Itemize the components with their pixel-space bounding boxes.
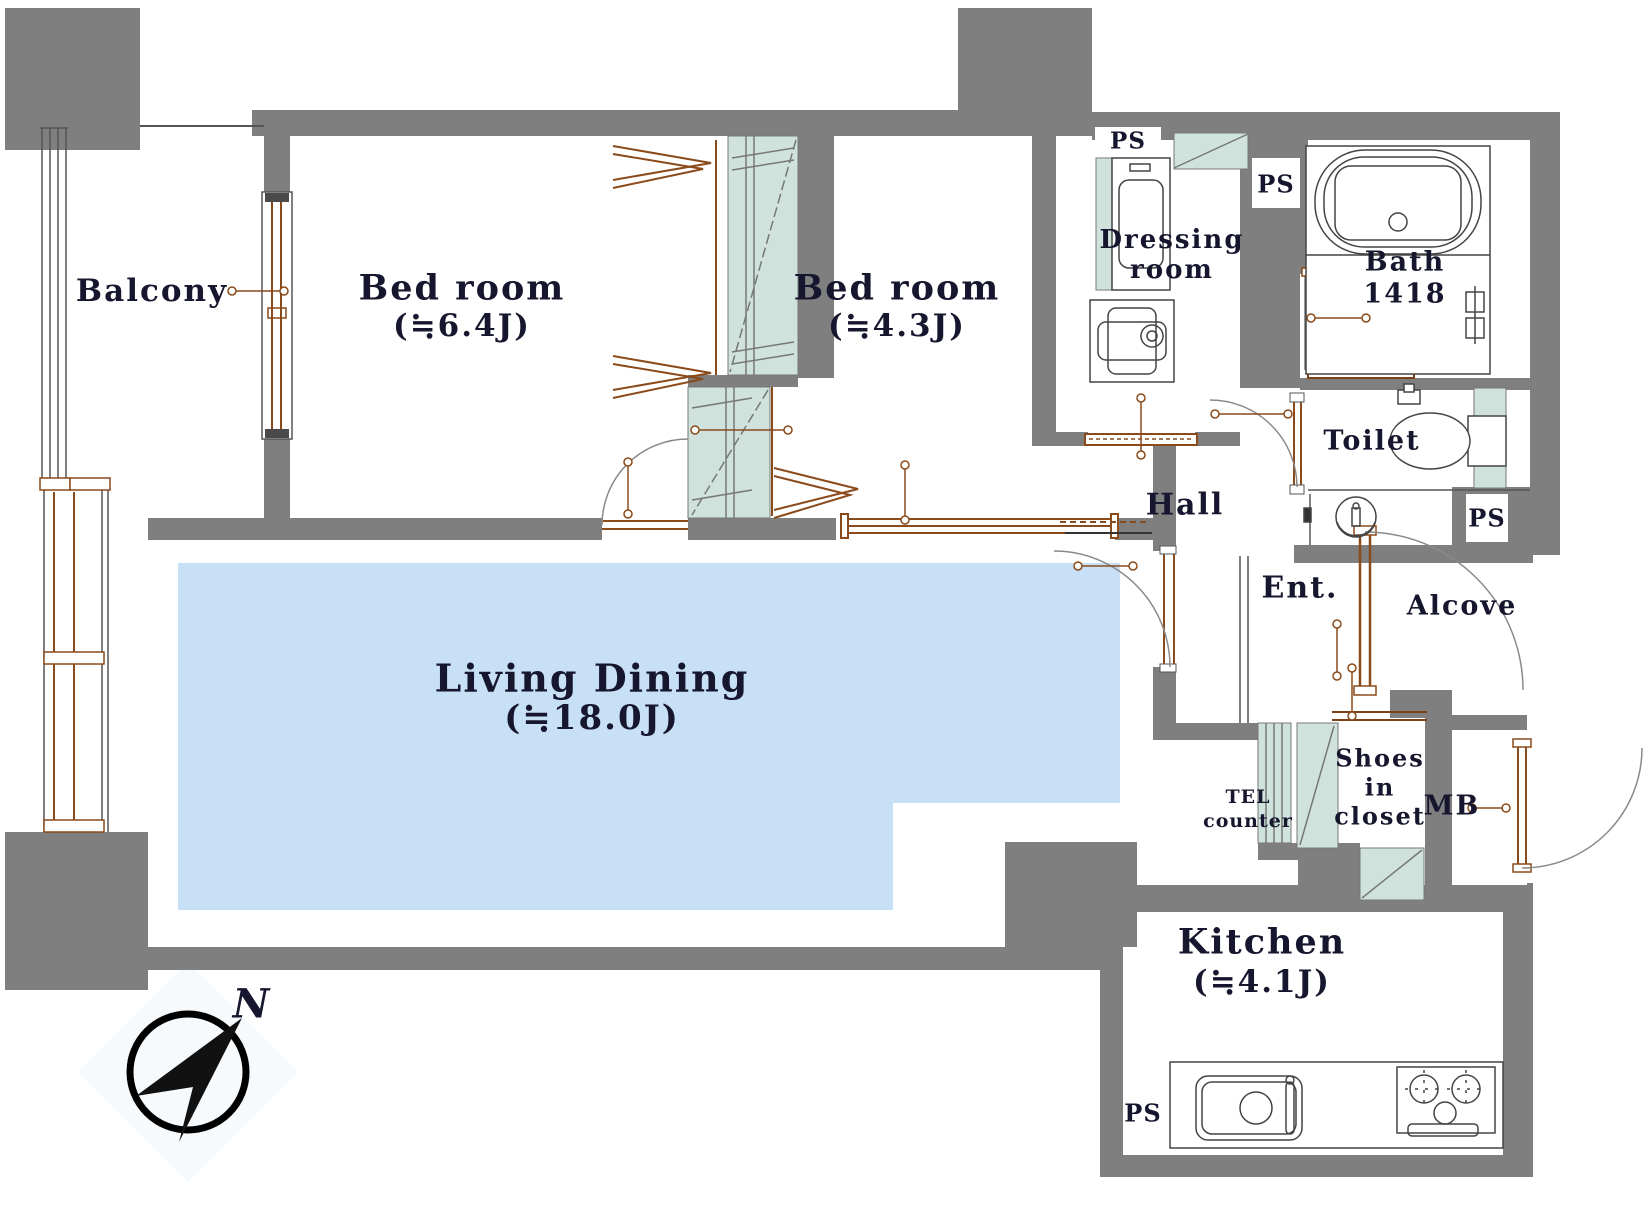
bedroom-small-size: (≒4.3J) xyxy=(828,308,966,344)
wall xyxy=(264,436,290,520)
ps-label: PS xyxy=(1124,1099,1161,1128)
wall xyxy=(1100,1155,1533,1177)
tel-counter-label-2: counter xyxy=(1203,810,1293,832)
wall xyxy=(1503,883,1533,1177)
washing-machine-pan xyxy=(1090,300,1174,382)
wall xyxy=(1153,667,1176,723)
wall xyxy=(1153,723,1258,740)
bath-label: Bath xyxy=(1365,247,1445,278)
dressing-room-label-2: room xyxy=(1130,255,1214,285)
dressing-side-fill xyxy=(1096,158,1112,290)
bedroom1-door xyxy=(602,439,688,529)
living-window xyxy=(40,478,110,832)
bedroom-window xyxy=(262,192,292,439)
wall xyxy=(1032,136,1056,446)
wall xyxy=(1056,432,1088,446)
tel-counter-label-1: TEL xyxy=(1226,786,1271,808)
alcove-label: Alcove xyxy=(1407,591,1518,622)
wall xyxy=(1390,690,1452,718)
wall xyxy=(1092,112,1560,140)
hall-label: Hall xyxy=(1146,488,1225,523)
wall xyxy=(148,518,602,540)
wall xyxy=(1123,885,1532,912)
wall xyxy=(1005,842,1137,947)
kitchen-size: (≒4.1J) xyxy=(1193,964,1331,1000)
balcony-label: Balcony xyxy=(76,273,228,309)
wall xyxy=(1100,947,1123,1177)
shoes-closet-label-1: Shoes xyxy=(1335,744,1425,773)
bath-size-label: 1418 xyxy=(1363,279,1446,310)
wall xyxy=(1195,432,1240,446)
compass-north-label: N xyxy=(233,981,272,1028)
shoes-closet-label-2: in xyxy=(1365,773,1396,802)
bedroom2-sliding-door xyxy=(841,514,1152,538)
ps-label: PS xyxy=(1110,128,1146,155)
meter-box-label: MB xyxy=(1424,791,1481,822)
wall xyxy=(5,8,140,150)
balcony-rail xyxy=(40,128,68,488)
bedroom-large-size: (≒6.4J) xyxy=(393,308,531,344)
living-dining-size: (≒18.0J) xyxy=(504,698,680,738)
wall xyxy=(688,375,798,387)
floor-plan: Balcony Bed room (≒6.4J) Bed room (≒4.3J… xyxy=(0,0,1647,1212)
wall xyxy=(148,947,1123,970)
wall xyxy=(688,518,836,540)
meter-box-door xyxy=(1513,739,1642,872)
dressing-room-label-1: Dressing xyxy=(1099,225,1244,255)
bedroom-large-label: Bed room xyxy=(359,268,566,309)
ps-label: PS xyxy=(1468,504,1505,533)
shoes-closet-label-3: closet xyxy=(1334,802,1426,831)
ps-label: PS xyxy=(1257,170,1294,199)
wall xyxy=(1452,715,1527,730)
wall xyxy=(958,8,1092,116)
wall xyxy=(1294,545,1533,563)
bedroom-small-label: Bed room xyxy=(794,268,1001,309)
kitchen-label: Kitchen xyxy=(1178,922,1346,963)
wall xyxy=(264,136,290,198)
wall xyxy=(1530,140,1560,555)
toilet-label: Toilet xyxy=(1323,426,1420,457)
living-dining-label: Living Dining xyxy=(435,656,750,701)
wall xyxy=(252,110,1092,136)
floor-plan-drawing xyxy=(0,0,1647,1212)
wall xyxy=(5,832,148,990)
entrance-label: Ent. xyxy=(1262,571,1339,606)
